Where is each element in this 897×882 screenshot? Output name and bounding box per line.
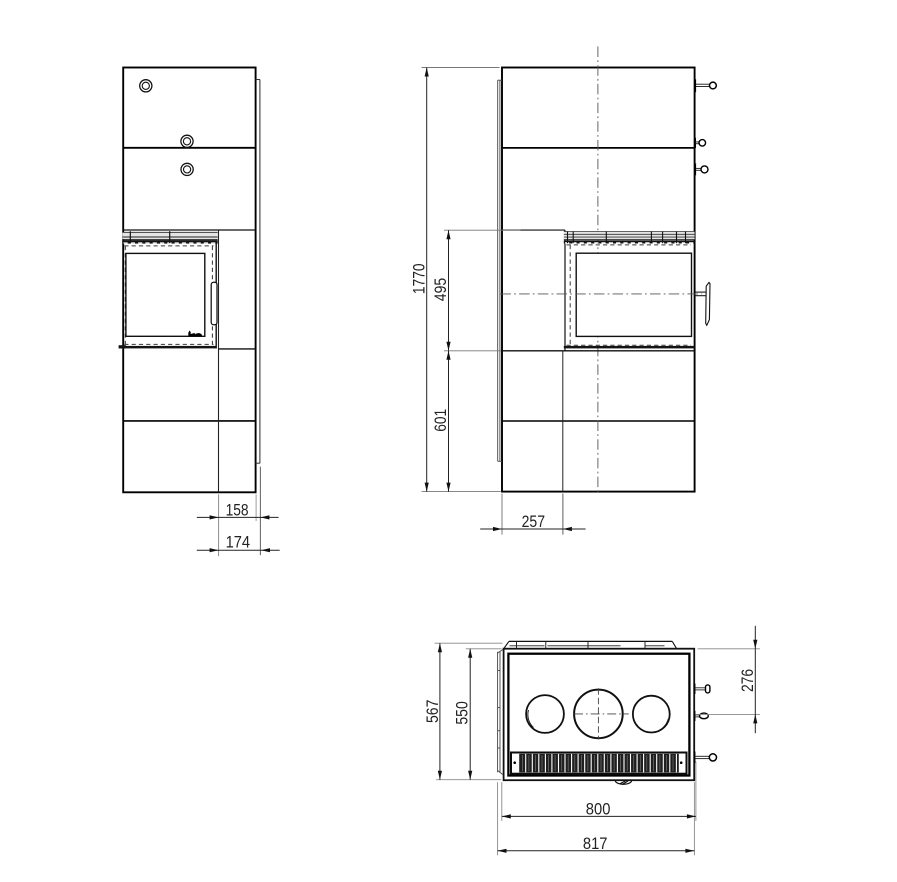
svg-text:495: 495 [431,278,450,301]
svg-text:550: 550 [452,701,471,724]
svg-text:257: 257 [522,512,545,531]
svg-text:567: 567 [423,700,442,723]
svg-text:276: 276 [738,669,757,692]
svg-text:800: 800 [586,799,611,818]
svg-text:158: 158 [226,500,249,519]
svg-text:817: 817 [583,834,608,853]
svg-text:174: 174 [226,533,251,552]
svg-text:601: 601 [431,409,450,432]
svg-text:1770: 1770 [410,264,429,295]
